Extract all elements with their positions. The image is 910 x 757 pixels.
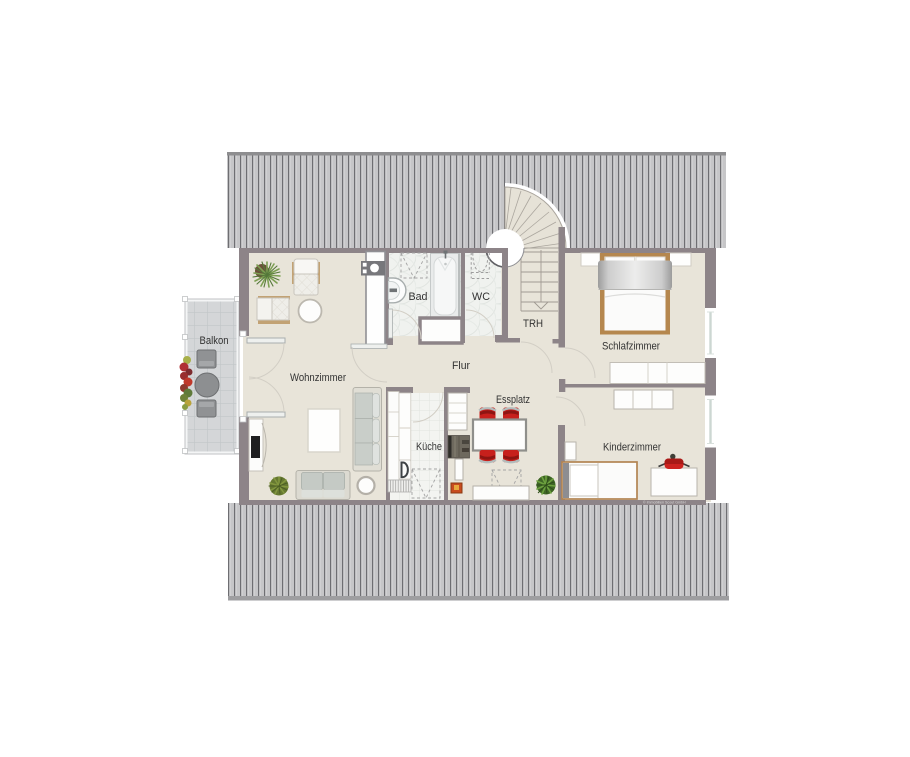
svg-text:Flur: Flur <box>452 360 470 372</box>
svg-text:Essplatz: Essplatz <box>496 394 530 406</box>
svg-text:Bad: Bad <box>409 291 428 303</box>
svg-text:© Immobilien Scout GmbH: © Immobilien Scout GmbH <box>643 501 686 505</box>
svg-text:Schlafzimmer: Schlafzimmer <box>602 341 660 353</box>
svg-text:WC: WC <box>472 291 490 303</box>
svg-text:Wohnzimmer: Wohnzimmer <box>290 372 346 384</box>
svg-text:Kinderzimmer: Kinderzimmer <box>603 442 661 454</box>
svg-text:Balkon: Balkon <box>200 335 229 347</box>
svg-text:Küche: Küche <box>416 441 442 453</box>
svg-text:TRH: TRH <box>523 318 543 330</box>
